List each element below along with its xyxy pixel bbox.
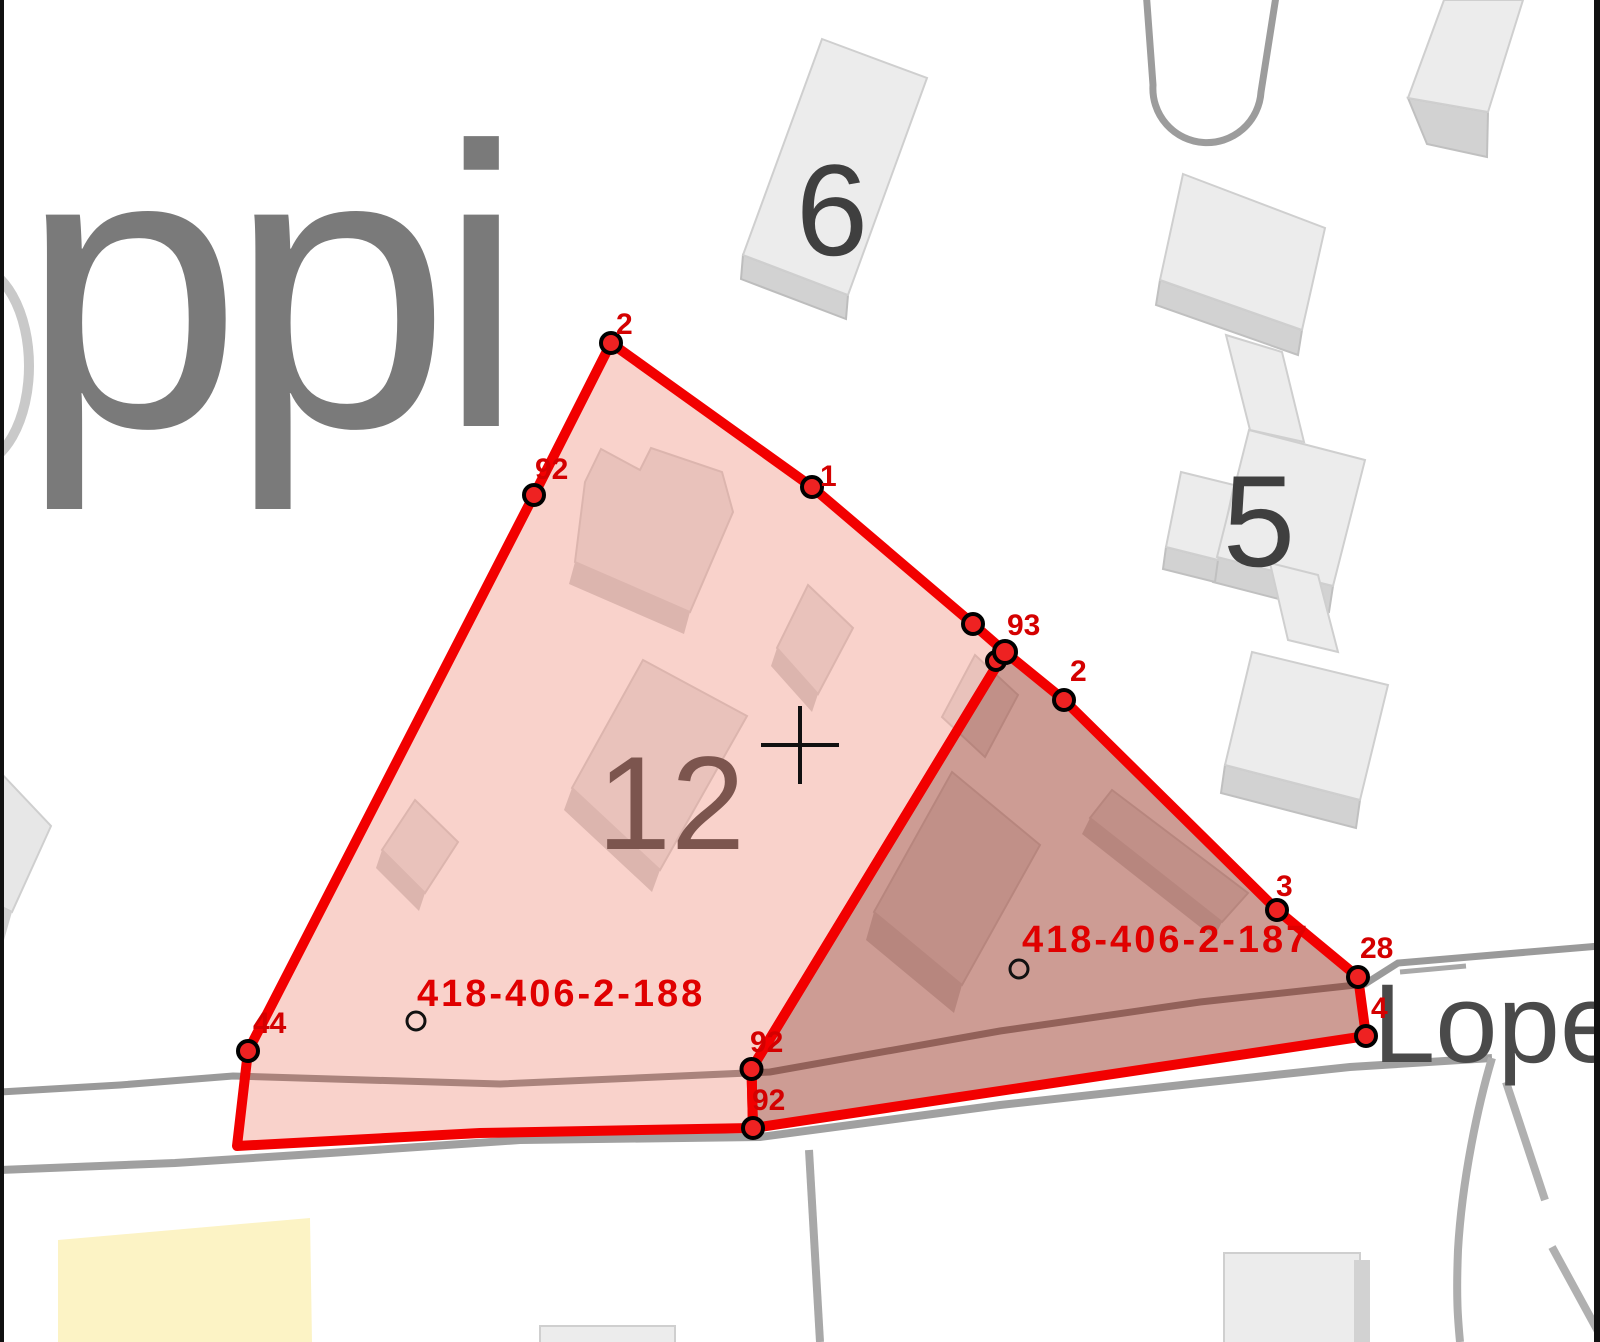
svg-text:1: 1 [820, 460, 837, 493]
svg-text:6: 6 [796, 137, 868, 283]
svg-text:418-406-2-188: 418-406-2-188 [417, 973, 705, 1015]
svg-text:2: 2 [1070, 655, 1087, 688]
svg-text:92: 92 [752, 1084, 785, 1117]
svg-text:44: 44 [253, 1007, 287, 1040]
svg-text:4: 4 [1371, 992, 1388, 1025]
svg-text:28: 28 [1360, 932, 1393, 965]
svg-text:2: 2 [616, 308, 633, 341]
svg-text:92: 92 [535, 453, 568, 486]
svg-text:92: 92 [750, 1026, 783, 1059]
svg-text:5: 5 [1223, 448, 1295, 594]
svg-text:3: 3 [1276, 870, 1293, 903]
svg-text:ppi: ppi [20, 64, 512, 514]
svg-text:Lope: Lope [1373, 961, 1600, 1086]
svg-text:93: 93 [1007, 609, 1040, 642]
svg-text:418-406-2-187: 418-406-2-187 [1022, 919, 1310, 961]
